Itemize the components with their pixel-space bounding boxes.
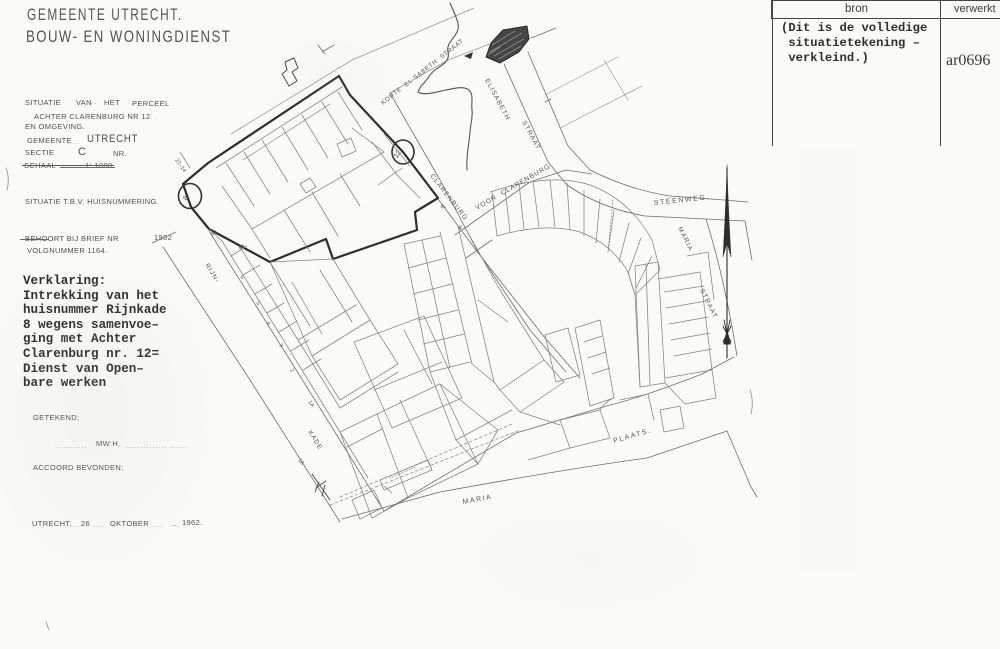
svg-text:MARIA: MARIA [462,494,493,506]
svg-text:KADE: KADE [306,429,323,451]
svg-text:5: 5 [254,301,261,307]
svg-text:STRAAT: STRAAT [698,288,718,320]
svg-text:VOOR CLARENBURG: VOOR CLARENBURG [475,163,552,212]
svg-text:4: 4 [264,321,271,327]
svg-text:CLARENBURG: CLARENBURG [428,173,469,222]
svg-text:1A: 1A [306,400,315,409]
svg-text:2: 2 [288,368,295,374]
svg-text:STEENWEG.: STEENWEG. [653,194,710,207]
svg-text:PLAATS.: PLAATS. [613,427,653,445]
svg-text:MARIA: MARIA [676,226,694,253]
svg-text:6*: 6* [439,204,447,212]
svg-text:ELISABETH: ELISABETH [483,78,511,122]
svg-text:3: 3 [277,343,284,349]
